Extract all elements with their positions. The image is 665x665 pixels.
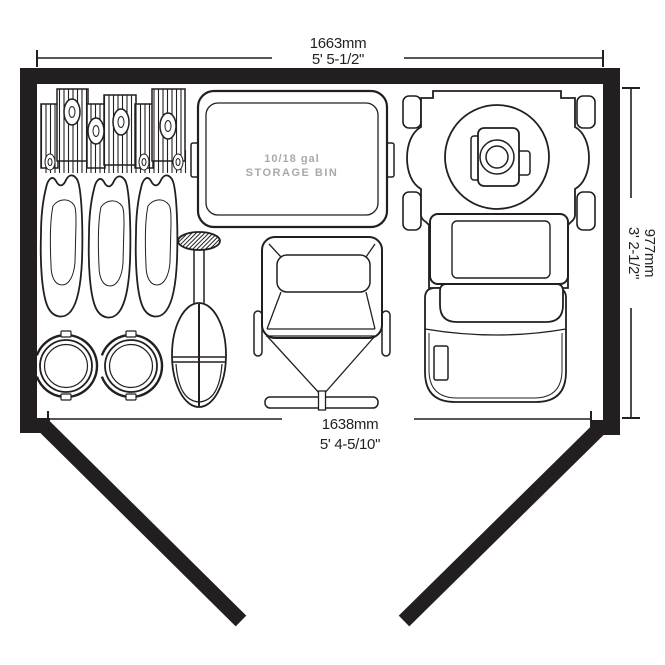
chair-cushion [277, 255, 370, 292]
storage-bin-label-line1: 10/18 gal [264, 153, 319, 165]
chair-armrest-left [254, 311, 262, 356]
dim-bottom-metric: 1638mm [322, 416, 379, 433]
chair-armrest-right [382, 311, 390, 356]
bucket-reels [37, 331, 162, 400]
dimension-bottom [48, 411, 591, 427]
scoop-tool [172, 232, 226, 407]
open-doors [45, 427, 600, 621]
dimension-right-labels: 977mm 3' 2-1/2" [625, 227, 658, 279]
lawn-mower [403, 91, 595, 402]
door-left [45, 427, 241, 621]
dim-top-metric: 1663mm [310, 35, 367, 52]
door-right [404, 428, 600, 621]
chair-post [319, 391, 326, 410]
dim-right-metric: 977mm [641, 229, 658, 278]
dim-top-imperial: 5' 5-1/2" [312, 51, 364, 68]
spade-blades [41, 175, 178, 317]
folding-chair [254, 237, 390, 410]
scoop-grip [178, 232, 220, 250]
dim-bottom-imperial: 5' 4-5/10" [320, 436, 380, 453]
bucket-reel-1 [37, 331, 97, 400]
tool-rack [41, 89, 187, 173]
shed-floor-plan: 1663mm 5' 5-1/2" 977mm 3' 2-1/2" 1638mm … [0, 0, 665, 665]
mower-bag-top [440, 284, 563, 322]
mower-catcher-latch [434, 346, 448, 380]
dim-right-imperial: 3' 2-1/2" [625, 227, 642, 279]
bucket-reel-2 [102, 331, 162, 400]
floor-plan-drawing: 1663mm 5' 5-1/2" 977mm 3' 2-1/2" 1638mm … [0, 0, 665, 665]
storage-bin-label-line2: STORAGE BIN [246, 167, 339, 179]
